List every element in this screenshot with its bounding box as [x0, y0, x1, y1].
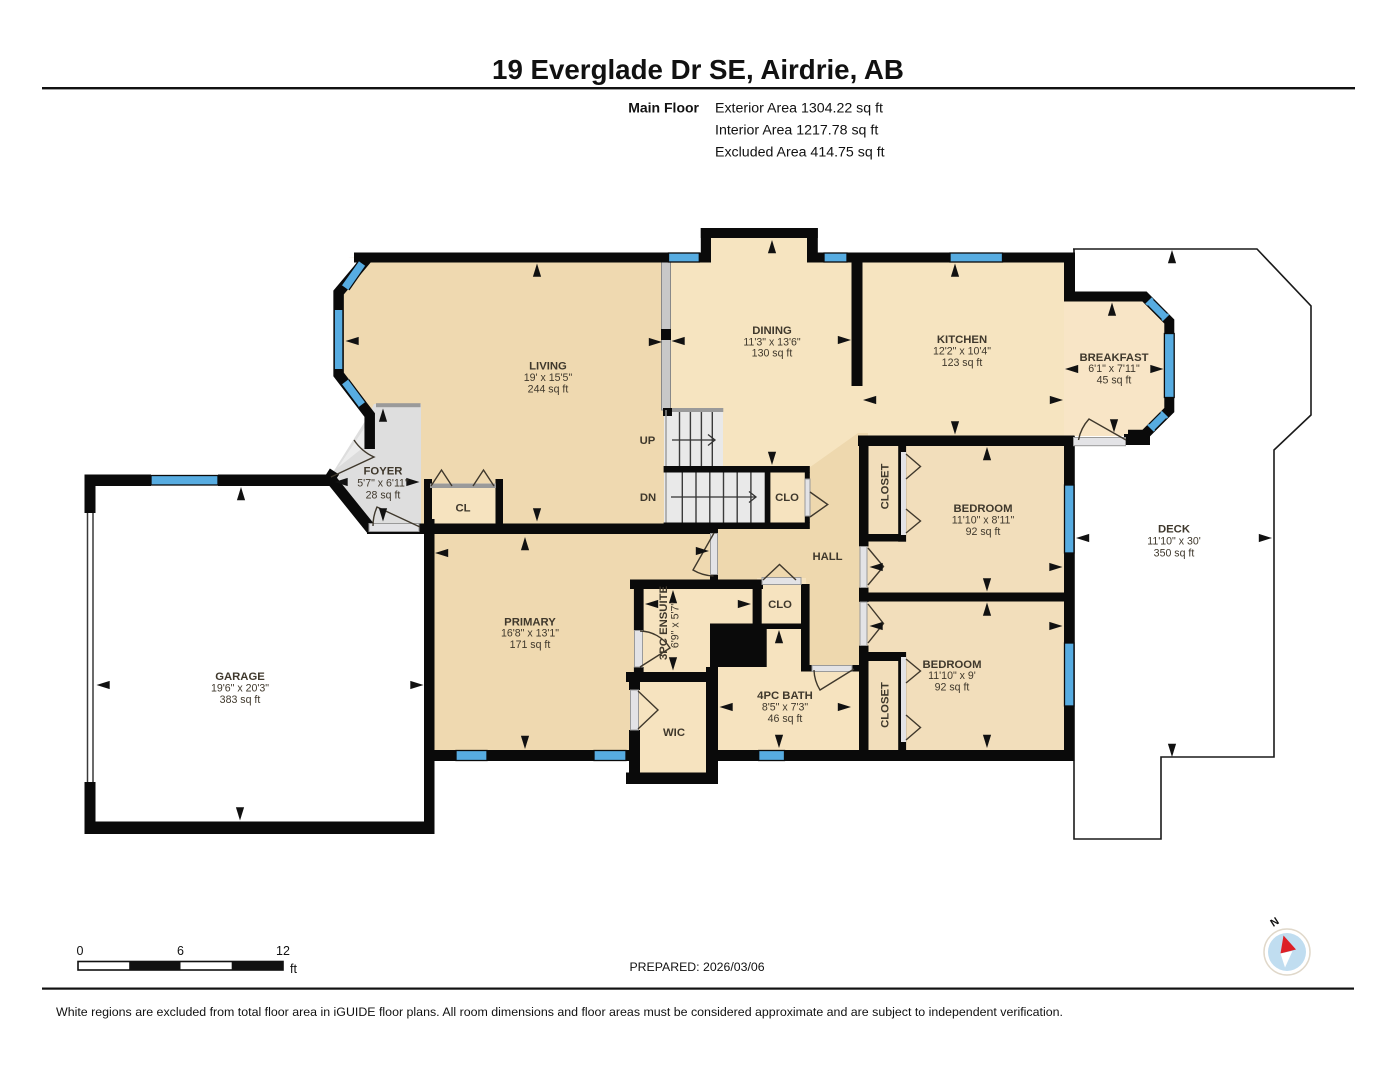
svg-text:244 sq ft: 244 sq ft [528, 384, 569, 396]
svg-text:KITCHEN: KITCHEN [937, 334, 987, 346]
svg-text:CLO: CLO [768, 599, 792, 611]
svg-text:123 sq ft: 123 sq ft [942, 357, 983, 369]
svg-text:171 sq ft: 171 sq ft [510, 639, 551, 651]
svg-text:White regions are excluded fro: White regions are excluded from total fl… [56, 1005, 1063, 1019]
svg-text:130 sq ft: 130 sq ft [752, 348, 793, 360]
svg-text:HALL: HALL [812, 551, 842, 563]
svg-text:BEDROOM: BEDROOM [954, 503, 1013, 515]
svg-text:WIC: WIC [663, 727, 685, 739]
svg-text:Exterior Area 1304.22 sq ft: Exterior Area 1304.22 sq ft [715, 101, 883, 117]
svg-text:19' x 15'5": 19' x 15'5" [524, 372, 573, 384]
svg-text:CLO: CLO [775, 492, 799, 504]
svg-text:92 sq ft: 92 sq ft [935, 682, 970, 694]
svg-text:11'10" x 8'11": 11'10" x 8'11" [952, 515, 1015, 527]
svg-text:CLOSET: CLOSET [880, 463, 892, 509]
svg-text:CLOSET: CLOSET [880, 682, 892, 728]
svg-text:ft: ft [290, 962, 297, 976]
svg-text:DECK: DECK [1158, 524, 1191, 536]
svg-text:Excluded Area 414.75 sq ft: Excluded Area 414.75 sq ft [715, 145, 885, 161]
svg-text:FOYER: FOYER [364, 466, 403, 478]
svg-text:16'8" x 13'1": 16'8" x 13'1" [501, 628, 559, 640]
svg-text:DN: DN [640, 492, 656, 504]
svg-text:Interior Area 1217.78 sq ft: Interior Area 1217.78 sq ft [715, 123, 878, 139]
svg-text:46 sq ft: 46 sq ft [768, 713, 803, 725]
svg-text:4PC BATH: 4PC BATH [757, 690, 813, 702]
svg-text:12'2" x 10'4": 12'2" x 10'4" [933, 346, 991, 358]
svg-text:28 sq ft: 28 sq ft [366, 490, 401, 502]
svg-text:6'9" x 5'7": 6'9" x 5'7" [670, 602, 682, 649]
svg-text:CL: CL [455, 503, 470, 515]
svg-text:11'10" x 9': 11'10" x 9' [928, 670, 976, 682]
svg-text:12: 12 [276, 944, 290, 958]
svg-text:LIVING: LIVING [529, 361, 567, 373]
svg-text:6'1" x 7'11": 6'1" x 7'11" [1088, 363, 1140, 375]
svg-text:8'5" x 7'3": 8'5" x 7'3" [762, 702, 809, 714]
svg-text:UP: UP [640, 435, 656, 447]
svg-text:92 sq ft: 92 sq ft [966, 526, 1001, 538]
svg-text:19'6" x 20'3": 19'6" x 20'3" [211, 683, 269, 695]
svg-text:350 sq ft: 350 sq ft [1154, 548, 1195, 560]
svg-text:DINING: DINING [752, 325, 792, 337]
svg-text:19 Everglade Dr SE, Airdrie, A: 19 Everglade Dr SE, Airdrie, AB [492, 54, 904, 85]
svg-text:Main Floor: Main Floor [628, 100, 699, 116]
svg-text:3PC ENSUITE: 3PC ENSUITE [658, 585, 670, 660]
svg-text:6: 6 [177, 944, 184, 958]
svg-text:11'10" x 30': 11'10" x 30' [1147, 536, 1201, 548]
svg-text:GARAGE: GARAGE [215, 671, 265, 683]
svg-text:45 sq ft: 45 sq ft [1097, 375, 1132, 387]
svg-text:0: 0 [77, 944, 84, 958]
svg-text:5'7" x 6'11": 5'7" x 6'11" [357, 478, 409, 490]
svg-text:383 sq ft: 383 sq ft [220, 694, 261, 706]
svg-text:PREPARED: 2026/03/06: PREPARED: 2026/03/06 [629, 960, 764, 974]
